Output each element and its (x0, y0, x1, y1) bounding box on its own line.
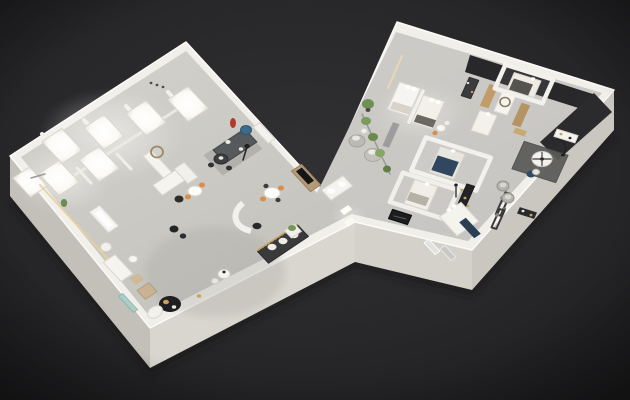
shape-layer (0, 0, 630, 400)
floorplan-render (0, 0, 630, 400)
vignette (0, 0, 630, 400)
floorplan-svg (0, 0, 630, 400)
